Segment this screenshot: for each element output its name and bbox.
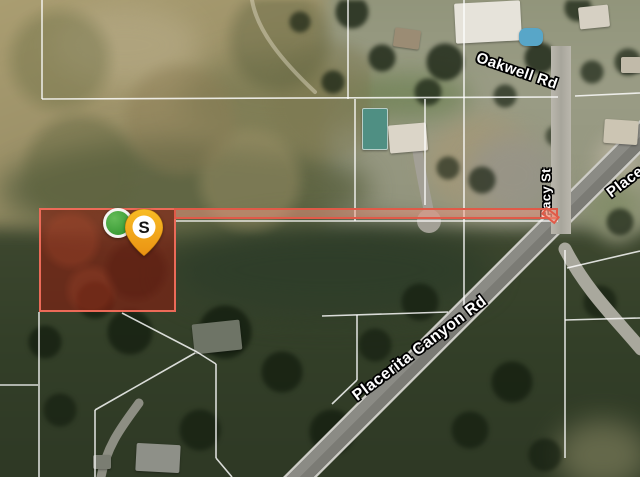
road-label-placerita-partial: Place: [603, 163, 640, 201]
map-pin-icon[interactable]: S: [125, 209, 163, 256]
road-label-placerita-canyon-rd: Placerita Canyon Rd: [349, 293, 490, 406]
road-label-oakwell-rd: Oakwell Rd: [474, 49, 560, 93]
pin-letter: S: [138, 218, 149, 237]
map-canvas[interactable]: Oakwell Rd Placerita Canyon Rd Place Pac…: [0, 0, 640, 477]
road-label-pacy-st: Pacy St: [539, 168, 554, 218]
